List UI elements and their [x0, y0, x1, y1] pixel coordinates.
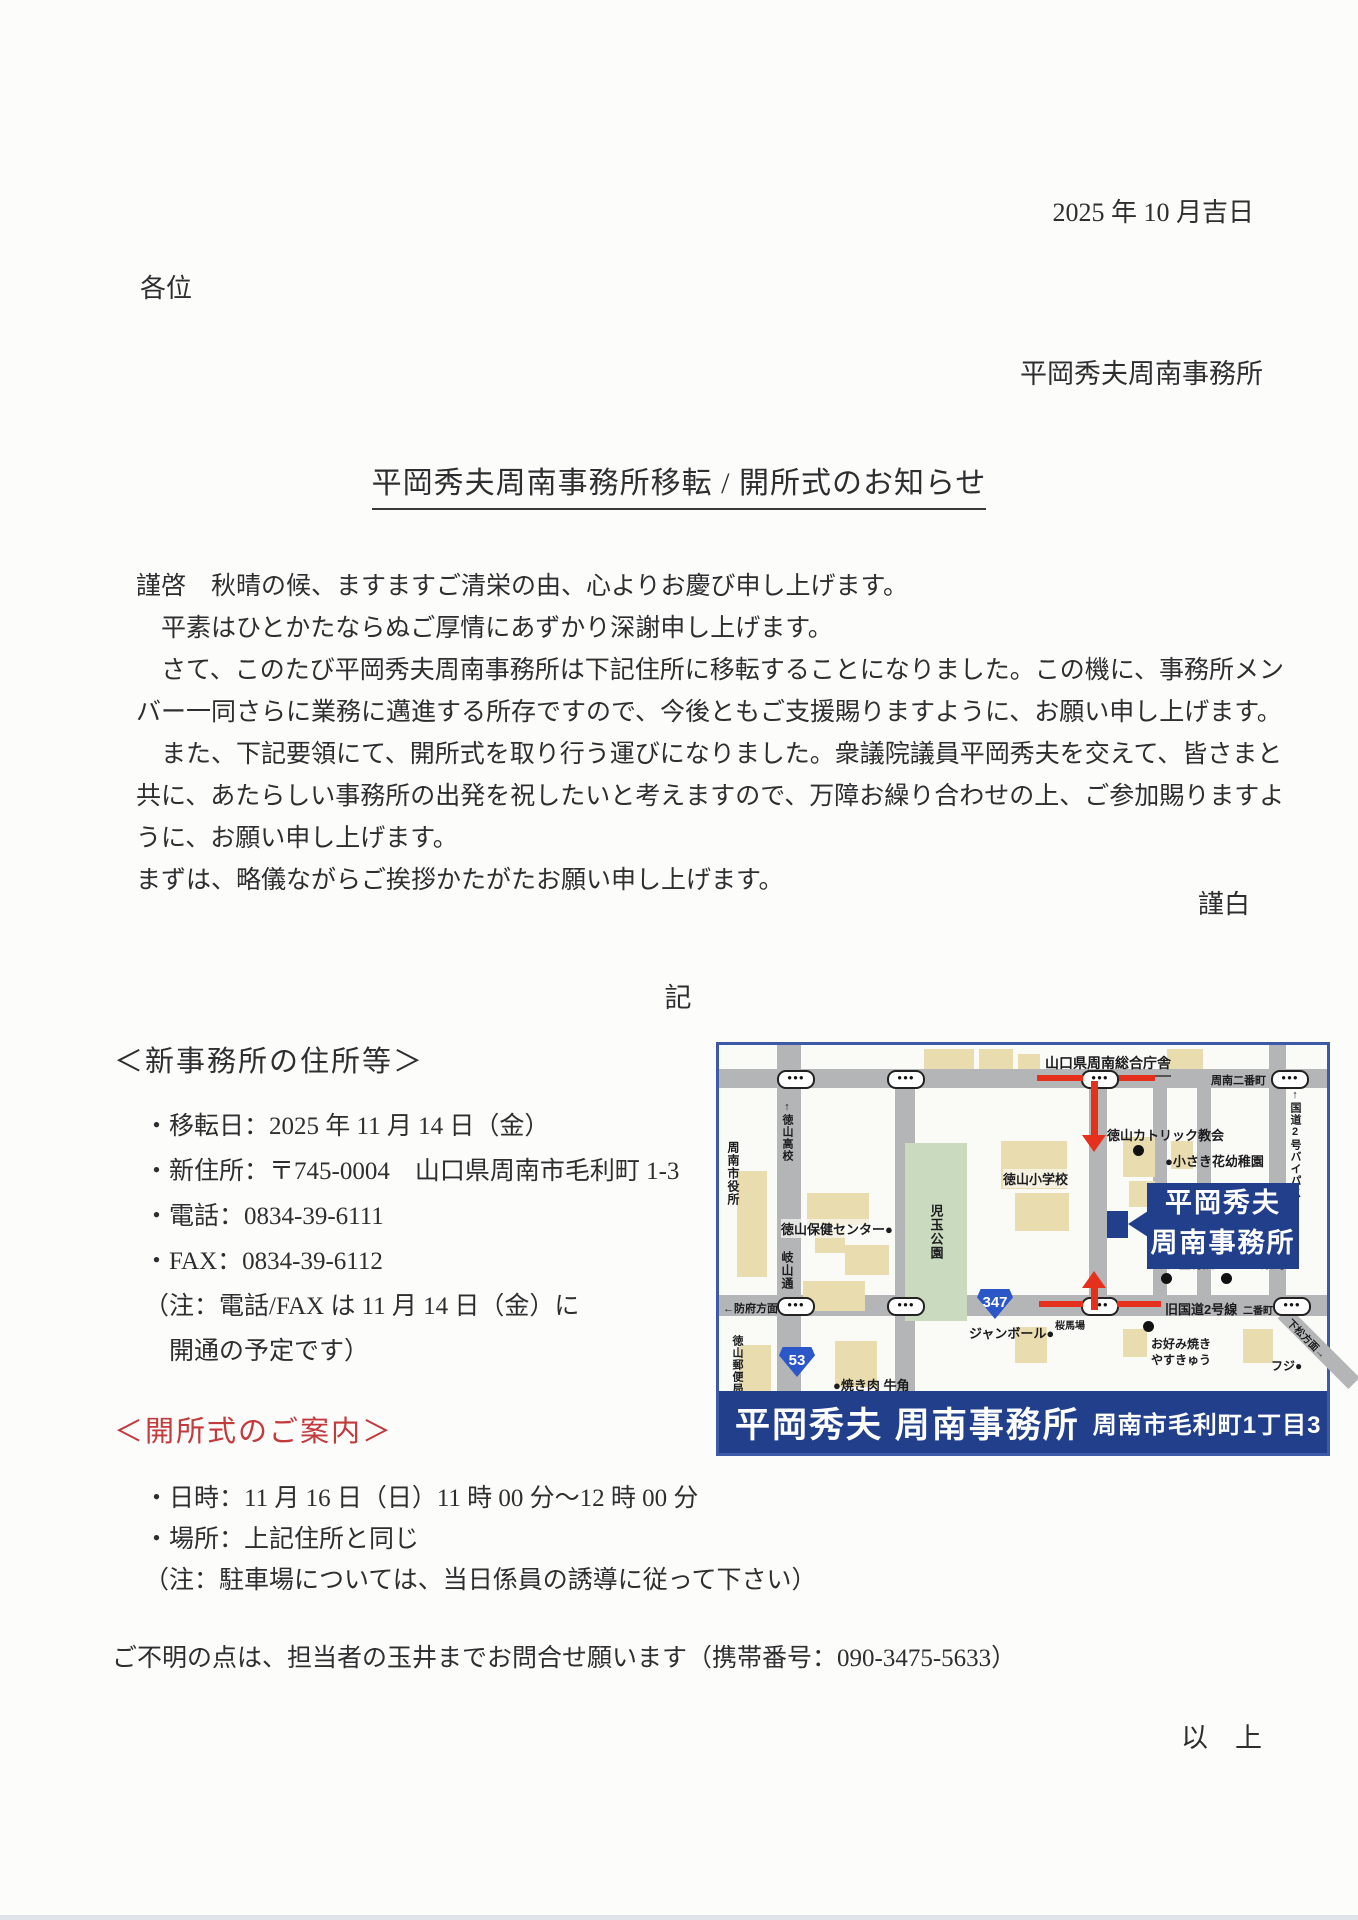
body-line: 謹啓 秋晴の候、ますますご清栄の由、心よりお慶び申し上げます。 [136, 566, 908, 602]
office-callout-line1: 平岡秀夫 [1147, 1183, 1299, 1223]
poi-dot [1221, 1273, 1232, 1284]
jumbo-label: ジャンボール● [969, 1323, 1054, 1342]
title-row: 平岡秀夫周南事務所移転 / 開所式のお知らせ [0, 458, 1358, 502]
traffic-light-icon: ●●● [887, 1070, 925, 1089]
gizan-street-label: 岐山通 [779, 1251, 796, 1290]
office-callout-line2: 周南事務所 [1147, 1223, 1299, 1263]
okonomiyaki-label-2: やすきゅう [1151, 1351, 1211, 1368]
health-center-label: 徳山保健センター● [781, 1219, 893, 1238]
address-item: ・移転日：2025 年 11 月 14 日（金） [144, 1106, 549, 1142]
poi-dot [1143, 1321, 1154, 1332]
body-line: バー一同さらに業務に邁進する所存ですので、今後ともご支援賜りますように、お願い申… [136, 692, 1282, 728]
building [1167, 1049, 1203, 1069]
traffic-light-icon: ●●● [1081, 1070, 1119, 1089]
route-red-bar [1039, 1301, 1083, 1307]
building [1243, 1329, 1273, 1363]
tokuyama-hs-label: ↑徳山高校 [779, 1101, 795, 1162]
traffic-light-icon: ●●● [777, 1070, 815, 1089]
building [924, 1049, 974, 1069]
map-banner: 平岡秀夫 周南事務所 周南市毛利町1丁目3 [719, 1391, 1327, 1453]
body-line: うに、お願い申し上げます。 [136, 818, 458, 854]
body-line: また、下記要領にて、開所式を取り行う運びになりました。衆議院議員平岡秀夫を交えて… [136, 734, 1282, 770]
address-item: ・新住所：〒745-0004 山口県周南市毛利町 1-3 [144, 1151, 679, 1187]
old-route2-label: 旧国道2号線 [1165, 1299, 1237, 1318]
closing: 謹白 [1198, 884, 1250, 921]
scan-edge-artifact [0, 1915, 1358, 1920]
route-red-bar [1037, 1075, 1083, 1081]
fuji-label: フジ● [1271, 1357, 1302, 1374]
poi-dot [1133, 1145, 1144, 1156]
address-item: ・電話：0834-39-6111 [144, 1196, 384, 1232]
route-red-bar [1119, 1075, 1155, 1081]
traffic-light-icon: ●●● [1081, 1297, 1119, 1316]
kodama-park: 児玉公園 [905, 1143, 967, 1321]
body-line: さて、このたび平岡秀夫周南事務所は下記住所に移転することになりました。この機に、… [136, 650, 1284, 686]
post-office-label: 徳山郵便局 [729, 1335, 745, 1395]
building [1123, 1329, 1147, 1357]
banner-office-name: 平岡秀夫 周南事務所 [735, 1397, 1080, 1448]
traffic-light-icon: ●●● [1271, 1070, 1309, 1089]
elementary-label: 徳山小学校 [1003, 1169, 1068, 1188]
address-note: 開通の予定です） [144, 1331, 369, 1367]
traffic-light-icon: ●●● [887, 1297, 925, 1316]
kindergarten-label: ●小さき花幼稚園 [1165, 1151, 1264, 1170]
traffic-light-icon: ●●● [777, 1297, 815, 1316]
office-location-marker [1107, 1211, 1128, 1238]
nibancho-top-label: 周南二番町 [1211, 1072, 1266, 1088]
poi-dot [1161, 1273, 1172, 1284]
body-line: 平素はひとかたならぬご厚情にあずかり深謝申し上げます。 [136, 608, 833, 644]
end-mark: 以 上 [1181, 1716, 1262, 1755]
addressee: 各位 [140, 268, 192, 305]
record-mark: 記 [0, 976, 1358, 1015]
letter-page: 2025 年 10 月吉日 各位 平岡秀夫周南事務所 平岡秀夫周南事務所移転 /… [0, 0, 1358, 1920]
sender: 平岡秀夫周南事務所 [1020, 352, 1263, 391]
callout-arrow-left-icon [1128, 1211, 1148, 1237]
ceremony-section-heading: ＜開所式のご案内＞ [114, 1408, 393, 1450]
building [1018, 1054, 1040, 1069]
letter-title: 平岡秀夫周南事務所移転 / 開所式のお知らせ [372, 467, 987, 510]
route-red-bar [1117, 1301, 1161, 1307]
sakurababa-label: 桜馬場 [1055, 1317, 1085, 1332]
building [1015, 1193, 1069, 1231]
building [979, 1049, 1013, 1069]
ceremony-item: ・場所：上記住所と同じ [144, 1519, 419, 1555]
kodama-park-label: 児玉公園 [927, 1204, 946, 1260]
okonomiyaki-label-1: お好み焼き [1151, 1335, 1211, 1352]
ceremony-item: ・日時：11 月 16 日（日）11 時 00 分～12 時 00 分 [144, 1478, 698, 1514]
nibancho-small-label: 二番町 [1243, 1302, 1273, 1317]
route-arrow-up-icon [1082, 1271, 1106, 1288]
route-arrow-down-stem [1091, 1081, 1098, 1135]
route-arrow-up-stem [1091, 1288, 1098, 1310]
ceremony-note: （注：駐車場については、当日係員の誘導に従って下さい） [144, 1560, 817, 1596]
kudamatsu-direction-label: 下松方面→ [1284, 1315, 1330, 1361]
address-note: （注：電話/FAX は 11 月 14 日（金）に [144, 1286, 579, 1322]
traffic-light-icon: ●●● [1273, 1297, 1311, 1316]
office-map: 児玉公園 ●●● ●●● ●●● ●●● ●●● ●●● ●●● ●●● [716, 1042, 1330, 1456]
building [845, 1245, 889, 1275]
body-line: 共に、あたらしい事務所の出発を祝したいと考えますので、万障お繰り合わせの上、ご参… [136, 776, 1284, 812]
letter-date: 2025 年 10 月吉日 [1052, 192, 1254, 229]
catholic-church-label: 徳山カトリック教会 [1107, 1125, 1224, 1144]
address-item: ・FAX：0834-39-6112 [144, 1241, 383, 1277]
address-section-heading: ＜新事務所の住所等＞ [114, 1038, 424, 1080]
route-arrow-down-icon [1082, 1135, 1106, 1152]
office-callout: 平岡秀夫 周南事務所 [1147, 1183, 1299, 1269]
body-line: まずは、略儀ながらご挨拶かたがたお願い申し上げます。 [136, 860, 784, 896]
banner-address: 周南市毛利町1丁目3 [1093, 1405, 1322, 1440]
hofu-direction-label: ←防府方面 [723, 1300, 778, 1316]
footer-note: ご不明の点は、担当者の玉井までお問合せ願います（携帯番号：090-3475-56… [112, 1638, 1016, 1674]
cityhall-label: 周南市役所 [725, 1141, 742, 1206]
